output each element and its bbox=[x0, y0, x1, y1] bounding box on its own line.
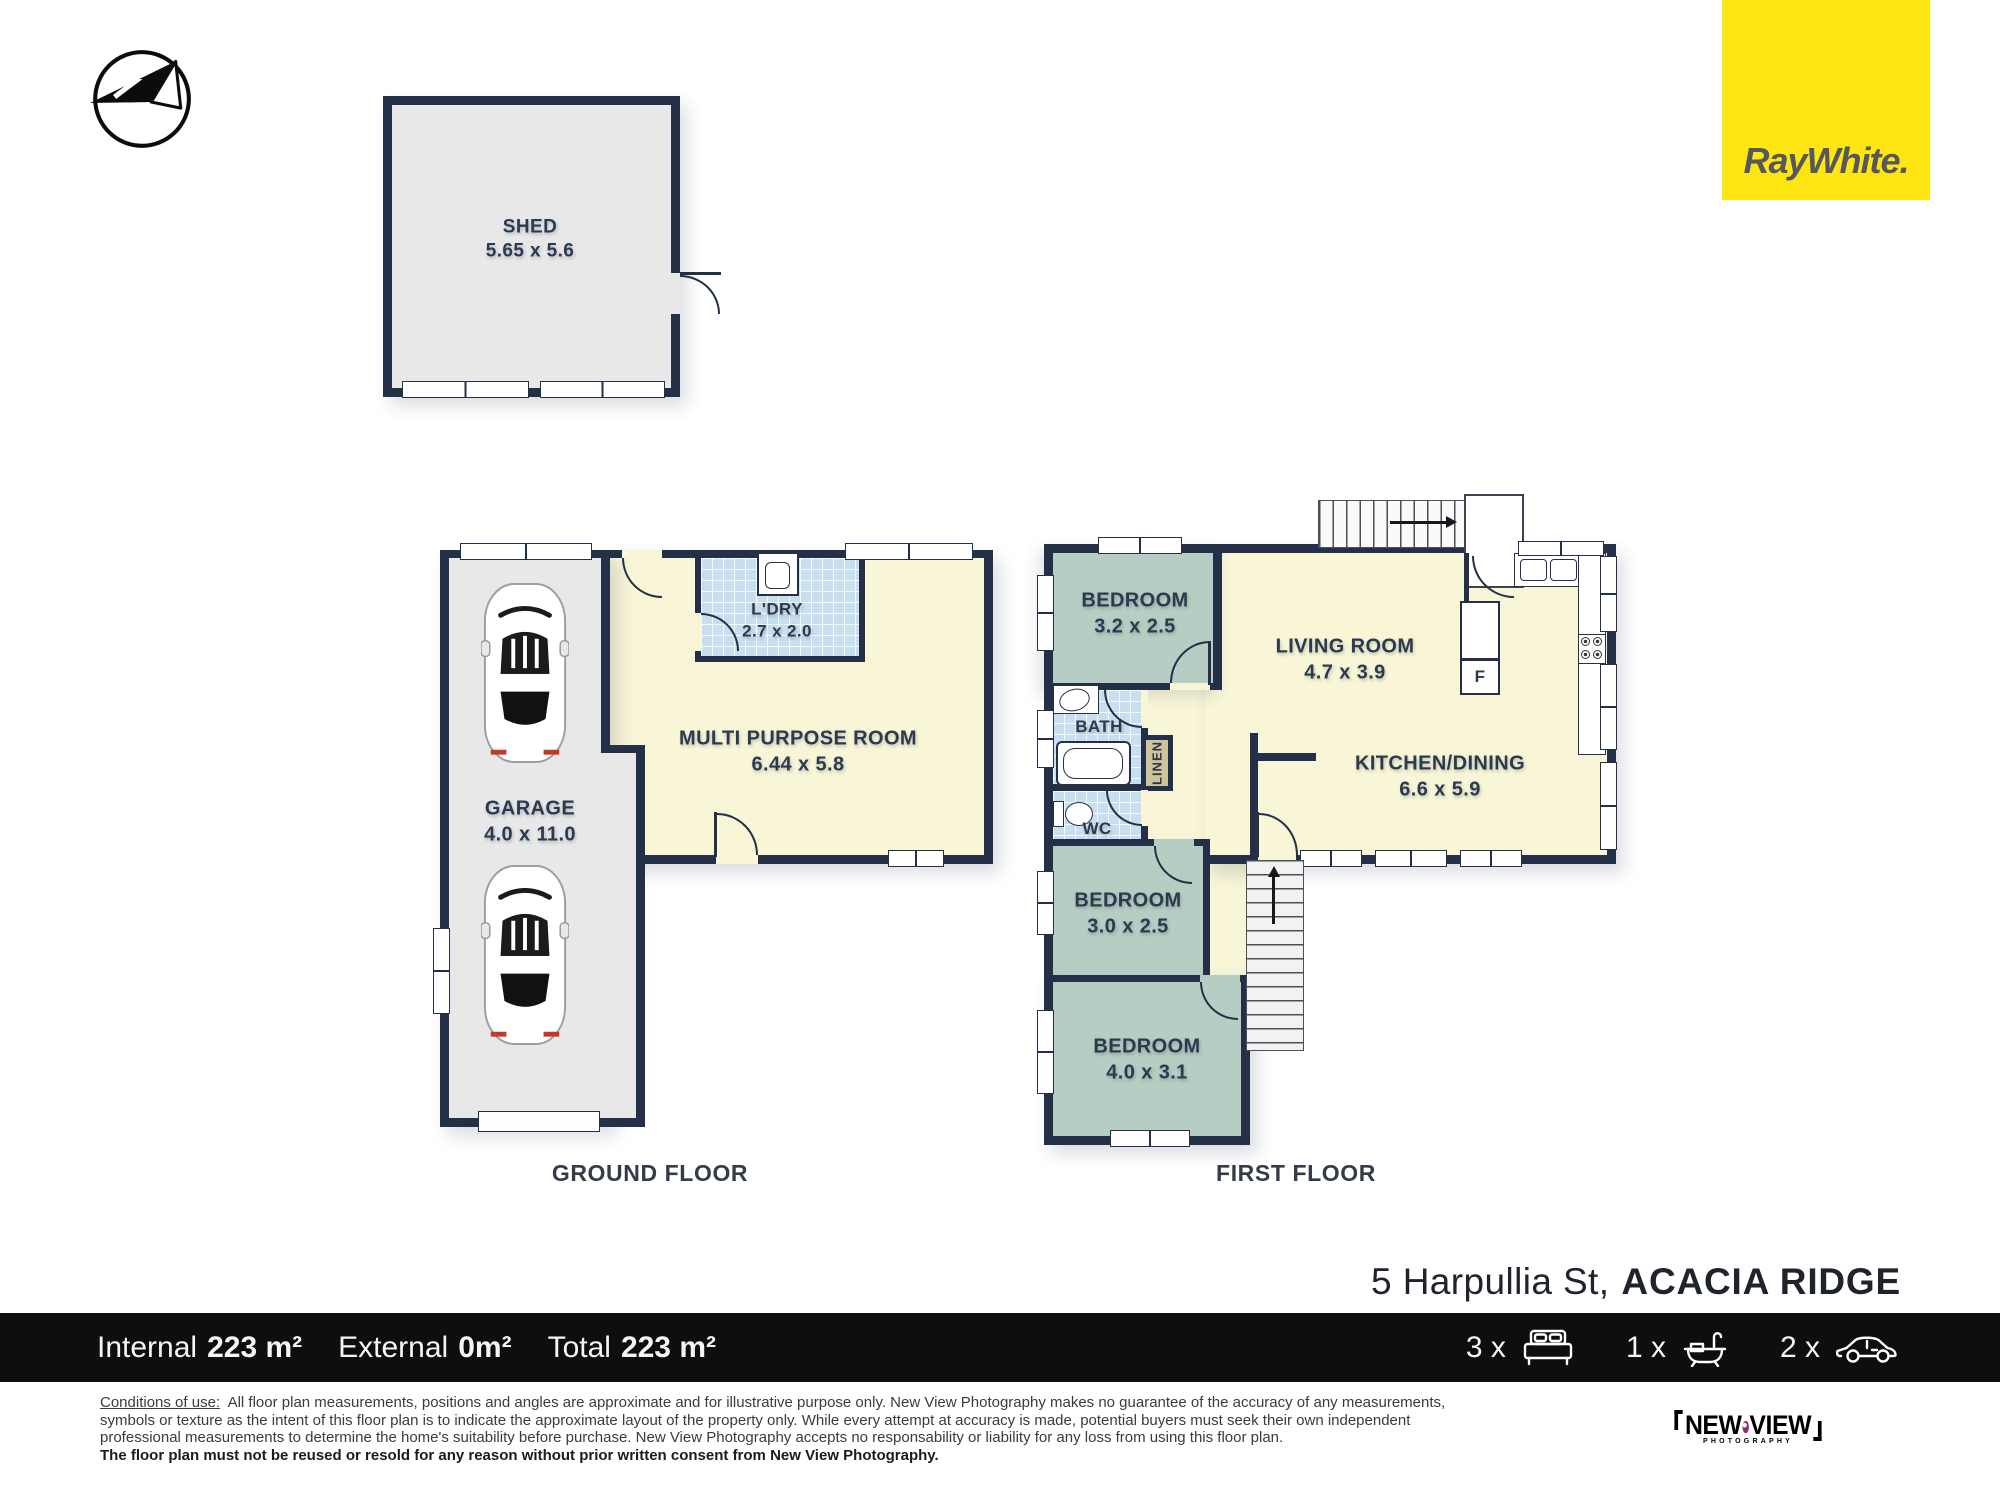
logo-text-new: NEW bbox=[1685, 1410, 1742, 1441]
window bbox=[1600, 556, 1617, 632]
north-compass-icon bbox=[84, 44, 196, 156]
door-opening bbox=[1141, 790, 1148, 826]
door-opening bbox=[1154, 839, 1194, 846]
stairs-direction-arrow bbox=[1272, 874, 1275, 924]
wall-segment bbox=[1250, 753, 1316, 761]
feature-counts: 3 x 1 x 2 bbox=[1466, 1329, 1900, 1367]
stove-burner-icon bbox=[1581, 637, 1590, 646]
external-value: 0m² bbox=[458, 1331, 511, 1365]
window bbox=[1110, 1130, 1190, 1147]
window bbox=[1600, 664, 1617, 750]
door-opening bbox=[1200, 975, 1240, 982]
garage-door bbox=[478, 1111, 600, 1132]
room-label-multi-purpose: MULTI PURPOSE ROOM 6.44 x 5.8 bbox=[679, 726, 917, 777]
area-summary: Internal 223 m² External 0m² Total 223 m… bbox=[97, 1331, 752, 1365]
room-label-bedroom-3: BEDROOM 4.0 x 3.1 bbox=[1093, 1034, 1200, 1085]
car-icon bbox=[1836, 1331, 1900, 1365]
window bbox=[433, 928, 450, 1014]
floor-plan-page: RayWhite. SHED 5.65 x 5.6 GARAGE 4.0 x 1… bbox=[0, 0, 2000, 1500]
ground-floor-caption: GROUND FLOOR bbox=[552, 1160, 748, 1187]
window bbox=[1037, 575, 1054, 651]
laundry-trough-basin bbox=[765, 562, 790, 589]
window bbox=[1300, 850, 1362, 867]
summary-bar: Internal 223 m² External 0m² Total 223 m… bbox=[0, 1313, 2000, 1382]
window bbox=[1518, 541, 1604, 556]
room-label-living: LIVING ROOM 4.7 x 3.9 bbox=[1276, 634, 1415, 685]
stairs-direction-arrow bbox=[1390, 521, 1446, 524]
external-label: External bbox=[338, 1331, 448, 1365]
room-label-bedroom-1: BEDROOM 3.2 x 2.5 bbox=[1081, 588, 1188, 639]
room-label-wc: WC bbox=[1082, 818, 1111, 840]
window bbox=[460, 543, 592, 560]
bracket-icon bbox=[1674, 1410, 1683, 1430]
total-label: Total bbox=[548, 1331, 611, 1365]
window bbox=[1460, 850, 1522, 867]
window bbox=[1098, 537, 1182, 554]
room-label-laundry: L'DRY 2.7 x 2.0 bbox=[742, 598, 812, 642]
stove-burner-icon bbox=[1593, 650, 1602, 659]
new-view-logo-row: NEW VIEW bbox=[1674, 1410, 1821, 1441]
address-street: 5 Harpullia St, bbox=[1371, 1261, 1609, 1302]
window bbox=[1600, 762, 1617, 850]
door-arc bbox=[680, 275, 720, 314]
legal-line: professional measurements to determine t… bbox=[100, 1429, 1620, 1447]
conditions-of-use: Conditions of use: All floor plan measur… bbox=[100, 1394, 1620, 1464]
window bbox=[1037, 710, 1054, 768]
door-opening bbox=[622, 550, 662, 558]
door-opening bbox=[1170, 683, 1210, 690]
arrow-head-icon bbox=[1268, 866, 1280, 877]
bath-count: 1 x bbox=[1626, 1329, 1728, 1367]
room-label-bedroom-2: BEDROOM 3.0 x 2.5 bbox=[1074, 888, 1181, 939]
legal-line-bold: The floor plan must not be reused or res… bbox=[100, 1447, 1620, 1465]
pantry-cabinet bbox=[1460, 601, 1500, 660]
aperture-dot-icon bbox=[1742, 1421, 1748, 1433]
window bbox=[845, 543, 973, 560]
car-top-view bbox=[481, 860, 569, 1050]
window bbox=[402, 381, 529, 398]
stove-burner-icon bbox=[1581, 650, 1590, 659]
first-floor-caption: FIRST FLOOR bbox=[1216, 1160, 1376, 1187]
stairs-interior bbox=[1246, 860, 1304, 1051]
ray-white-logo: RayWhite. bbox=[1722, 0, 1930, 200]
room-label-bath: BATH bbox=[1075, 716, 1123, 738]
room-label-garage: GARAGE 4.0 x 11.0 bbox=[484, 796, 576, 847]
room-label-shed: SHED 5.65 x 5.6 bbox=[486, 216, 575, 265]
room-label-linen: LINEN bbox=[1150, 741, 1165, 785]
car-top-view bbox=[481, 578, 569, 768]
room-garage-extension bbox=[601, 745, 645, 1127]
arrow-head-icon bbox=[1446, 516, 1457, 528]
door-opening bbox=[692, 613, 701, 651]
bath-icon bbox=[1682, 1329, 1728, 1367]
wall-segment bbox=[601, 550, 610, 753]
stove-burner-icon bbox=[1593, 637, 1602, 646]
wall-segment bbox=[1464, 553, 1469, 604]
address-suburb: ACACIA RIDGE bbox=[1621, 1261, 1901, 1302]
door-opening bbox=[671, 273, 680, 314]
legal-line: symbols or texture as the intent of this… bbox=[100, 1412, 1620, 1430]
new-view-photography-logo: NEW VIEW PHOTOGRAPHY bbox=[1668, 1410, 1828, 1445]
internal-label: Internal bbox=[97, 1331, 197, 1365]
logo-text-view: VIEW bbox=[1749, 1410, 1811, 1441]
bathtub-inner bbox=[1063, 748, 1123, 779]
door-opening bbox=[1141, 690, 1148, 728]
door-opening bbox=[716, 855, 758, 864]
fridge-label: F bbox=[1475, 666, 1486, 688]
ray-white-logo-text: RayWhite. bbox=[1743, 140, 1908, 182]
bracket-icon bbox=[1813, 1421, 1822, 1441]
kitchen-sink bbox=[1550, 559, 1577, 581]
bed-icon bbox=[1522, 1329, 1574, 1367]
total-value: 223 m² bbox=[621, 1331, 716, 1365]
window bbox=[888, 850, 944, 867]
window bbox=[1037, 871, 1054, 935]
window bbox=[1037, 1010, 1054, 1094]
bed-count: 3 x bbox=[1466, 1329, 1574, 1367]
room-label-kitchen: KITCHEN/DINING 6.6 x 5.9 bbox=[1355, 751, 1525, 802]
window bbox=[1375, 850, 1447, 867]
kitchen-sink bbox=[1520, 559, 1547, 581]
car-count: 2 x bbox=[1780, 1331, 1900, 1365]
internal-value: 223 m² bbox=[207, 1331, 302, 1365]
window bbox=[540, 381, 665, 398]
legal-line: Conditions of use: All floor plan measur… bbox=[100, 1394, 1620, 1412]
property-address: 5 Harpullia St,ACACIA RIDGE bbox=[1371, 1261, 1901, 1303]
legal-heading: Conditions of use: bbox=[100, 1394, 220, 1411]
toilet-cistern bbox=[1053, 801, 1064, 827]
